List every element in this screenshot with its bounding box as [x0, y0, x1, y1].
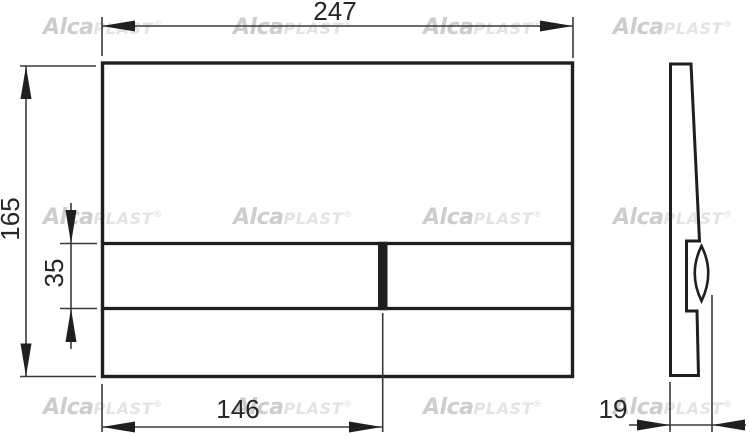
arrowhead-left: [102, 21, 135, 32]
arrowhead-pointing-right: [637, 420, 670, 431]
dimension-strip-height: 35: [39, 203, 97, 349]
technical-drawing: AlcaPLAST®AlcaPLAST®AlcaPLAST®AlcaPLAST®…: [0, 0, 750, 436]
side-view: [671, 64, 709, 376]
arrowhead-down: [66, 210, 77, 244]
dim-width-label: 247: [313, 0, 356, 26]
dim-height-label: 165: [0, 197, 25, 240]
button-lens-profile: [695, 246, 709, 301]
plate-outline: [103, 63, 573, 377]
arrowhead-up: [66, 309, 77, 343]
dimension-width: 247: [102, 0, 573, 58]
arrowhead-bottom: [21, 344, 32, 377]
drawing-svg: 247 165 35 146: [0, 0, 750, 436]
arrowhead-right: [540, 21, 573, 32]
arrowhead-top: [21, 66, 32, 99]
profile-outline: [671, 64, 700, 376]
dimension-depth: 19: [599, 295, 746, 432]
front-view: [103, 63, 573, 377]
dim-depth-label: 19: [599, 394, 628, 424]
dimension-button-width: 146: [102, 313, 383, 433]
dimension-height: 165: [0, 66, 96, 377]
arrowhead-pointing-left: [712, 420, 745, 431]
button-divider-bar: [378, 242, 388, 310]
arrowhead-right: [349, 422, 382, 433]
dim-strip-height-label: 35: [39, 259, 69, 288]
dim-button-width-label: 146: [216, 394, 259, 424]
arrowhead-left: [102, 422, 135, 433]
